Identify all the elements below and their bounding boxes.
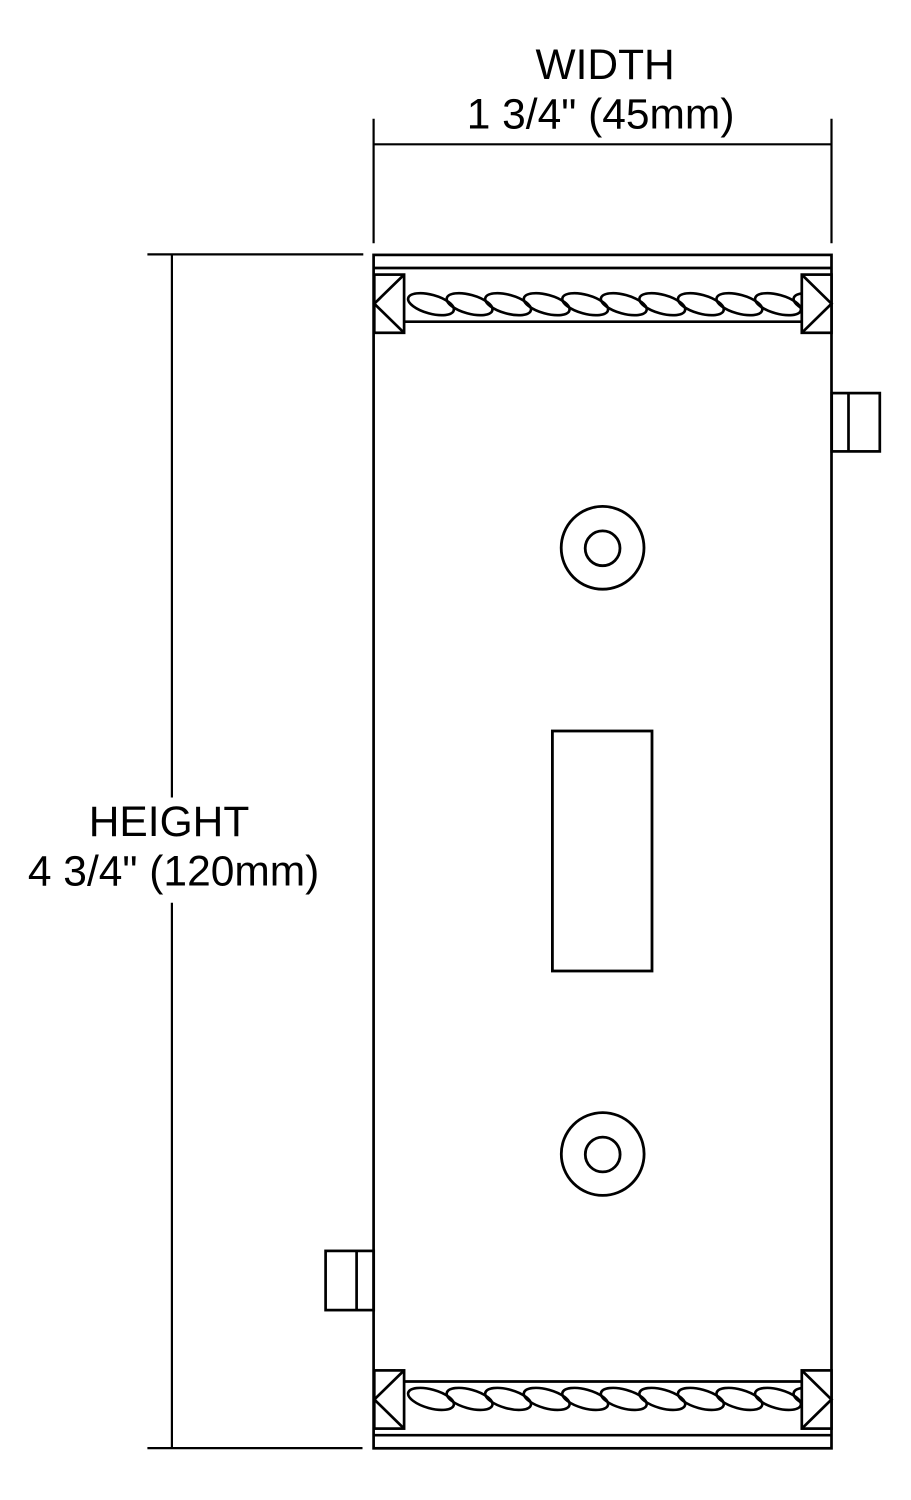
- svg-text:4 3/4" (120mm): 4 3/4" (120mm): [28, 848, 319, 895]
- svg-text:WIDTH: WIDTH: [535, 42, 674, 89]
- svg-text:1 3/4" (45mm): 1 3/4" (45mm): [467, 91, 735, 138]
- svg-text:HEIGHT: HEIGHT: [89, 799, 250, 846]
